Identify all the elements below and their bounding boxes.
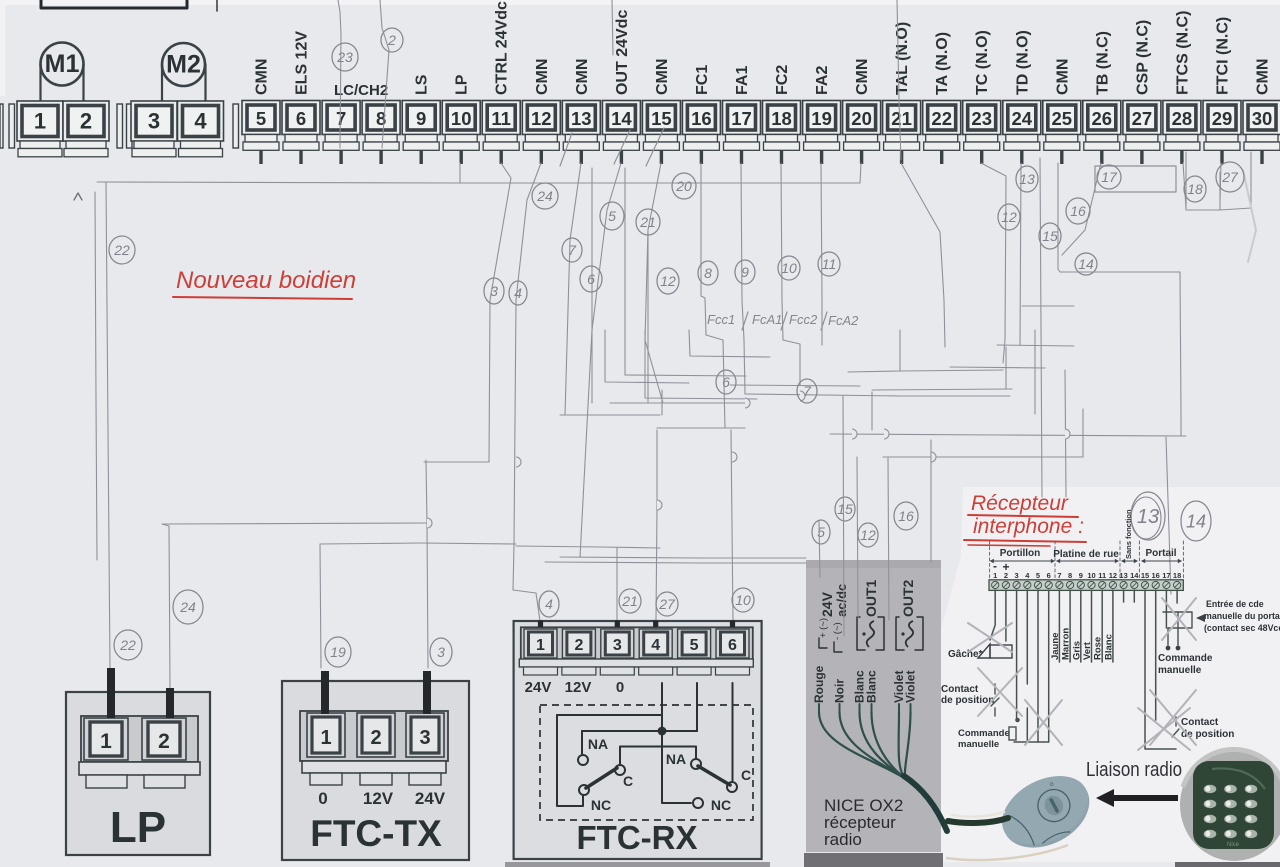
svg-text:13: 13 bbox=[571, 108, 592, 129]
svg-text:24V: 24V bbox=[525, 679, 552, 696]
svg-text:27: 27 bbox=[658, 596, 676, 612]
svg-text:FA1: FA1 bbox=[734, 66, 751, 95]
svg-text:M2: M2 bbox=[166, 51, 201, 79]
svg-text:C: C bbox=[741, 767, 751, 783]
svg-text:20: 20 bbox=[851, 108, 872, 129]
svg-text:15: 15 bbox=[1042, 228, 1058, 244]
svg-text:FC1: FC1 bbox=[694, 65, 711, 95]
svg-text:4: 4 bbox=[514, 285, 522, 301]
svg-text:FcA2: FcA2 bbox=[828, 313, 859, 328]
svg-text:0: 0 bbox=[318, 789, 327, 808]
svg-text:+ (~): + (~) bbox=[818, 618, 829, 638]
svg-text:12: 12 bbox=[1109, 571, 1117, 580]
svg-text:2: 2 bbox=[370, 727, 381, 749]
svg-text:CMN: CMN bbox=[534, 59, 551, 95]
svg-text:6: 6 bbox=[728, 637, 737, 654]
svg-text:2: 2 bbox=[1004, 571, 1008, 580]
svg-text:24: 24 bbox=[1012, 108, 1033, 129]
svg-text:16: 16 bbox=[691, 108, 712, 129]
svg-text:18: 18 bbox=[1187, 181, 1203, 197]
svg-text:18: 18 bbox=[771, 108, 792, 129]
svg-text:Contact: Contact bbox=[941, 684, 979, 695]
svg-text:9: 9 bbox=[741, 264, 749, 280]
svg-text:OUT 24Vdc: OUT 24Vdc bbox=[614, 10, 631, 95]
svg-text:de position: de position bbox=[941, 695, 994, 706]
svg-text:9: 9 bbox=[1079, 571, 1083, 580]
svg-text:3: 3 bbox=[490, 283, 498, 299]
svg-text:FTC-TX: FTC-TX bbox=[310, 813, 442, 854]
svg-text:LS: LS bbox=[414, 74, 431, 95]
svg-text:1: 1 bbox=[993, 571, 997, 580]
svg-text:2: 2 bbox=[574, 637, 583, 654]
svg-text:CSP (N.C): CSP (N.C) bbox=[1134, 20, 1151, 95]
svg-text:OUT2: OUT2 bbox=[900, 579, 916, 617]
svg-text:28: 28 bbox=[1172, 108, 1193, 129]
svg-text:11: 11 bbox=[491, 108, 511, 129]
svg-text:11: 11 bbox=[822, 256, 837, 272]
svg-text:30: 30 bbox=[1252, 108, 1273, 129]
svg-text:11: 11 bbox=[1098, 571, 1106, 580]
svg-text:(contact sec 48Vcc/1: (contact sec 48Vcc/1 bbox=[1204, 623, 1280, 633]
svg-text:21: 21 bbox=[639, 214, 656, 230]
svg-text:Violet: Violet bbox=[904, 671, 918, 703]
svg-text:22: 22 bbox=[931, 108, 952, 129]
svg-text:10: 10 bbox=[735, 592, 751, 608]
svg-text:25: 25 bbox=[1052, 108, 1073, 129]
svg-text:interphone :: interphone : bbox=[973, 515, 1084, 538]
svg-text:10: 10 bbox=[781, 260, 797, 276]
svg-text:12V: 12V bbox=[363, 789, 394, 808]
svg-text:5: 5 bbox=[690, 637, 699, 654]
svg-text:CMN: CMN bbox=[1255, 59, 1272, 95]
svg-text:10: 10 bbox=[451, 108, 472, 129]
svg-text:FA2: FA2 bbox=[814, 66, 831, 95]
svg-text:10: 10 bbox=[1087, 571, 1095, 580]
svg-text:Fcc2: Fcc2 bbox=[789, 312, 818, 327]
svg-text:CMN: CMN bbox=[1054, 59, 1071, 95]
svg-text:de position: de position bbox=[1181, 729, 1234, 740]
svg-text:26: 26 bbox=[1092, 108, 1113, 129]
svg-text:Sans fonction: Sans fonction bbox=[1124, 509, 1133, 559]
svg-text:15: 15 bbox=[1141, 571, 1149, 580]
svg-text:OUT1: OUT1 bbox=[863, 579, 879, 617]
svg-text:ELS 12V: ELS 12V bbox=[294, 31, 311, 95]
svg-text:Blanc: Blanc bbox=[1103, 634, 1114, 660]
svg-text:TD (N.O): TD (N.O) bbox=[1014, 30, 1031, 95]
svg-text:24: 24 bbox=[536, 188, 553, 204]
svg-text:21: 21 bbox=[891, 108, 912, 129]
svg-text:FC2: FC2 bbox=[774, 65, 791, 95]
svg-text:13: 13 bbox=[1119, 571, 1127, 580]
svg-text:TB (N.C): TB (N.C) bbox=[1094, 31, 1111, 95]
svg-text:0: 0 bbox=[616, 679, 624, 696]
svg-text:radio: radio bbox=[824, 830, 862, 849]
svg-text:5: 5 bbox=[817, 524, 825, 540]
svg-text:- (~): - (~) bbox=[832, 622, 843, 640]
svg-text:17: 17 bbox=[1162, 571, 1170, 580]
svg-text:24V: 24V bbox=[819, 591, 835, 617]
svg-text:Jaune: Jaune bbox=[1050, 633, 1061, 660]
svg-text:15: 15 bbox=[837, 501, 853, 517]
svg-text:15: 15 bbox=[651, 108, 672, 129]
svg-text:14: 14 bbox=[1078, 256, 1094, 272]
svg-text:2: 2 bbox=[387, 32, 396, 48]
svg-text:Commande: Commande bbox=[1158, 653, 1213, 664]
svg-text:1: 1 bbox=[536, 637, 545, 654]
svg-text:Nice: Nice bbox=[1227, 842, 1240, 848]
svg-text:Fcc1: Fcc1 bbox=[707, 312, 735, 327]
svg-text:Rouge: Rouge bbox=[812, 665, 826, 703]
svg-text:21: 21 bbox=[621, 593, 638, 609]
svg-text:Nouveau boidien: Nouveau boidien bbox=[176, 267, 356, 294]
svg-text:Marron: Marron bbox=[1061, 628, 1072, 660]
svg-text:FcA1: FcA1 bbox=[752, 312, 782, 327]
svg-text:Entrée de cde: Entrée de cde bbox=[1206, 599, 1264, 609]
svg-text:14: 14 bbox=[611, 108, 632, 129]
svg-text:Platine de rue: Platine de rue bbox=[1053, 549, 1119, 560]
svg-text:12: 12 bbox=[1001, 209, 1017, 225]
svg-text:CMN: CMN bbox=[254, 59, 271, 95]
svg-text:16: 16 bbox=[1152, 571, 1160, 580]
svg-text:C: C bbox=[623, 773, 633, 789]
svg-text:7: 7 bbox=[803, 383, 812, 399]
svg-text:22: 22 bbox=[113, 242, 130, 258]
svg-text:Rose: Rose bbox=[1093, 637, 1104, 660]
svg-text:LP: LP bbox=[110, 803, 166, 852]
svg-text:4: 4 bbox=[545, 596, 553, 612]
svg-text:7: 7 bbox=[568, 242, 577, 258]
svg-text:18: 18 bbox=[1173, 571, 1181, 580]
svg-text:16: 16 bbox=[1070, 203, 1086, 219]
svg-text:LC/CH2: LC/CH2 bbox=[334, 82, 388, 99]
svg-text:7: 7 bbox=[336, 108, 346, 129]
svg-text:ac/dc: ac/dc bbox=[834, 584, 849, 617]
svg-text:7: 7 bbox=[1057, 571, 1061, 580]
svg-text:manuelle: manuelle bbox=[958, 739, 999, 750]
svg-text:4: 4 bbox=[194, 109, 207, 134]
svg-text:16: 16 bbox=[898, 508, 914, 524]
svg-text:1: 1 bbox=[34, 109, 46, 134]
svg-text:3: 3 bbox=[437, 644, 445, 660]
svg-text:14: 14 bbox=[1130, 571, 1139, 580]
svg-text:Liaison radio: Liaison radio bbox=[1086, 759, 1182, 781]
svg-text:TC (N.O): TC (N.O) bbox=[974, 30, 991, 95]
svg-text:LP: LP bbox=[454, 74, 471, 95]
svg-text:12: 12 bbox=[660, 273, 676, 289]
svg-text:NC: NC bbox=[591, 797, 611, 813]
svg-text:13: 13 bbox=[1137, 506, 1159, 528]
svg-text:22: 22 bbox=[119, 637, 136, 653]
svg-text:manuelle du portail: manuelle du portail bbox=[1204, 611, 1280, 621]
svg-text:Commande: Commande bbox=[958, 728, 1010, 739]
svg-text:CMN: CMN bbox=[654, 59, 671, 95]
svg-text:3: 3 bbox=[1015, 571, 1019, 580]
svg-text:NA: NA bbox=[588, 736, 608, 752]
svg-text:8: 8 bbox=[1068, 571, 1072, 580]
svg-text:23: 23 bbox=[336, 49, 353, 65]
svg-text:29: 29 bbox=[1212, 108, 1233, 129]
svg-text:Portail: Portail bbox=[1145, 548, 1176, 559]
svg-text:12: 12 bbox=[531, 108, 552, 129]
svg-text:27: 27 bbox=[1221, 169, 1239, 185]
svg-text:17: 17 bbox=[731, 108, 752, 129]
svg-text:CMN: CMN bbox=[854, 59, 871, 95]
svg-text:CTRL 24Vdc: CTRL 24Vdc bbox=[494, 1, 511, 95]
svg-text:6: 6 bbox=[722, 374, 730, 390]
svg-text:2: 2 bbox=[158, 730, 170, 753]
svg-text:3: 3 bbox=[613, 637, 622, 654]
svg-text:FTCS (N.C): FTCS (N.C) bbox=[1174, 11, 1191, 95]
svg-text:24: 24 bbox=[179, 599, 196, 615]
svg-text:FTC-RX: FTC-RX bbox=[577, 819, 698, 856]
svg-text:19: 19 bbox=[811, 108, 832, 129]
svg-text:20: 20 bbox=[675, 178, 692, 194]
svg-text:5: 5 bbox=[608, 208, 616, 224]
svg-text:M1: M1 bbox=[45, 50, 80, 78]
svg-text:27: 27 bbox=[1132, 108, 1153, 129]
svg-text:3: 3 bbox=[148, 109, 160, 134]
svg-text:6: 6 bbox=[296, 108, 306, 129]
svg-text:manuelle: manuelle bbox=[1158, 665, 1202, 676]
svg-text:NA: NA bbox=[666, 751, 686, 767]
svg-text:NC: NC bbox=[711, 797, 731, 813]
svg-text:4: 4 bbox=[651, 637, 660, 654]
svg-text:Contact: Contact bbox=[1181, 717, 1219, 728]
svg-text:Noir: Noir bbox=[833, 679, 847, 703]
svg-text:Gris: Gris bbox=[1071, 641, 1082, 660]
svg-text:Blanc: Blanc bbox=[865, 670, 879, 703]
svg-text:FTCI (N.C): FTCI (N.C) bbox=[1215, 17, 1232, 95]
svg-text:3: 3 bbox=[419, 727, 430, 749]
svg-text:13: 13 bbox=[1019, 171, 1035, 187]
svg-text:8: 8 bbox=[704, 265, 712, 281]
svg-text:24V: 24V bbox=[415, 789, 446, 808]
svg-text:12V: 12V bbox=[565, 679, 592, 696]
svg-text:14: 14 bbox=[1186, 512, 1206, 532]
svg-text:5: 5 bbox=[256, 108, 266, 129]
svg-text:1: 1 bbox=[100, 730, 112, 753]
svg-text:TAL (N.O): TAL (N.O) bbox=[894, 22, 911, 95]
svg-text:2: 2 bbox=[80, 109, 92, 134]
svg-text:Vert: Vert bbox=[1082, 641, 1093, 660]
svg-text:9: 9 bbox=[416, 108, 426, 129]
svg-text:12: 12 bbox=[860, 527, 876, 543]
svg-text:TA (N.O): TA (N.O) bbox=[934, 32, 951, 95]
svg-text:1: 1 bbox=[320, 727, 331, 749]
svg-text:6: 6 bbox=[1047, 571, 1051, 580]
svg-text:23: 23 bbox=[971, 108, 992, 129]
svg-text:17: 17 bbox=[1101, 169, 1118, 185]
svg-text:19: 19 bbox=[330, 644, 346, 660]
svg-text:CMN: CMN bbox=[574, 59, 591, 95]
svg-text:5: 5 bbox=[1036, 571, 1040, 580]
svg-text:Portillon: Portillon bbox=[1000, 548, 1041, 559]
svg-text:Récepteur: Récepteur bbox=[971, 492, 1069, 515]
svg-text:6: 6 bbox=[587, 271, 595, 287]
